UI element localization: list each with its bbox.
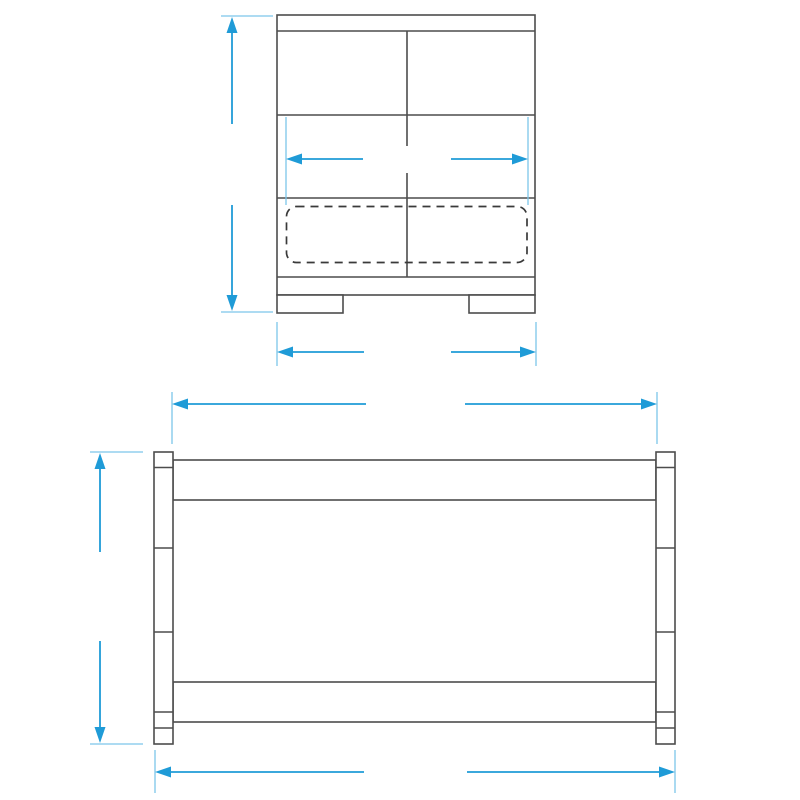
end-view-right-foot bbox=[469, 295, 535, 313]
front-view-bottom-rail bbox=[173, 682, 656, 722]
post-body bbox=[154, 452, 173, 744]
end-view-left-foot bbox=[277, 295, 343, 313]
diagram-canvas bbox=[0, 0, 800, 800]
label-mask bbox=[364, 339, 451, 366]
arrowhead-left-icon bbox=[155, 767, 171, 778]
front-view-drawing bbox=[154, 452, 675, 744]
arrowhead-left-icon bbox=[277, 347, 293, 358]
label-mask bbox=[364, 759, 467, 786]
front-view-right-post bbox=[656, 452, 675, 744]
arrowhead-down-icon bbox=[95, 727, 106, 743]
arrowhead-right-icon bbox=[659, 767, 675, 778]
label-mask bbox=[363, 146, 451, 173]
arrowhead-right-icon bbox=[641, 399, 657, 410]
front-view-top-rail bbox=[173, 460, 656, 500]
arrowhead-left-icon bbox=[172, 399, 188, 410]
arrowhead-up-icon bbox=[95, 453, 106, 469]
front-view-left-post bbox=[154, 452, 173, 744]
arrowhead-up-icon bbox=[227, 17, 238, 33]
label-mask bbox=[366, 391, 465, 418]
arrowhead-right-icon bbox=[520, 347, 536, 358]
arrowhead-down-icon bbox=[227, 295, 238, 311]
front-view-dimensions bbox=[90, 391, 675, 793]
post-body bbox=[656, 452, 675, 744]
cot-dimension-diagram bbox=[0, 0, 800, 800]
